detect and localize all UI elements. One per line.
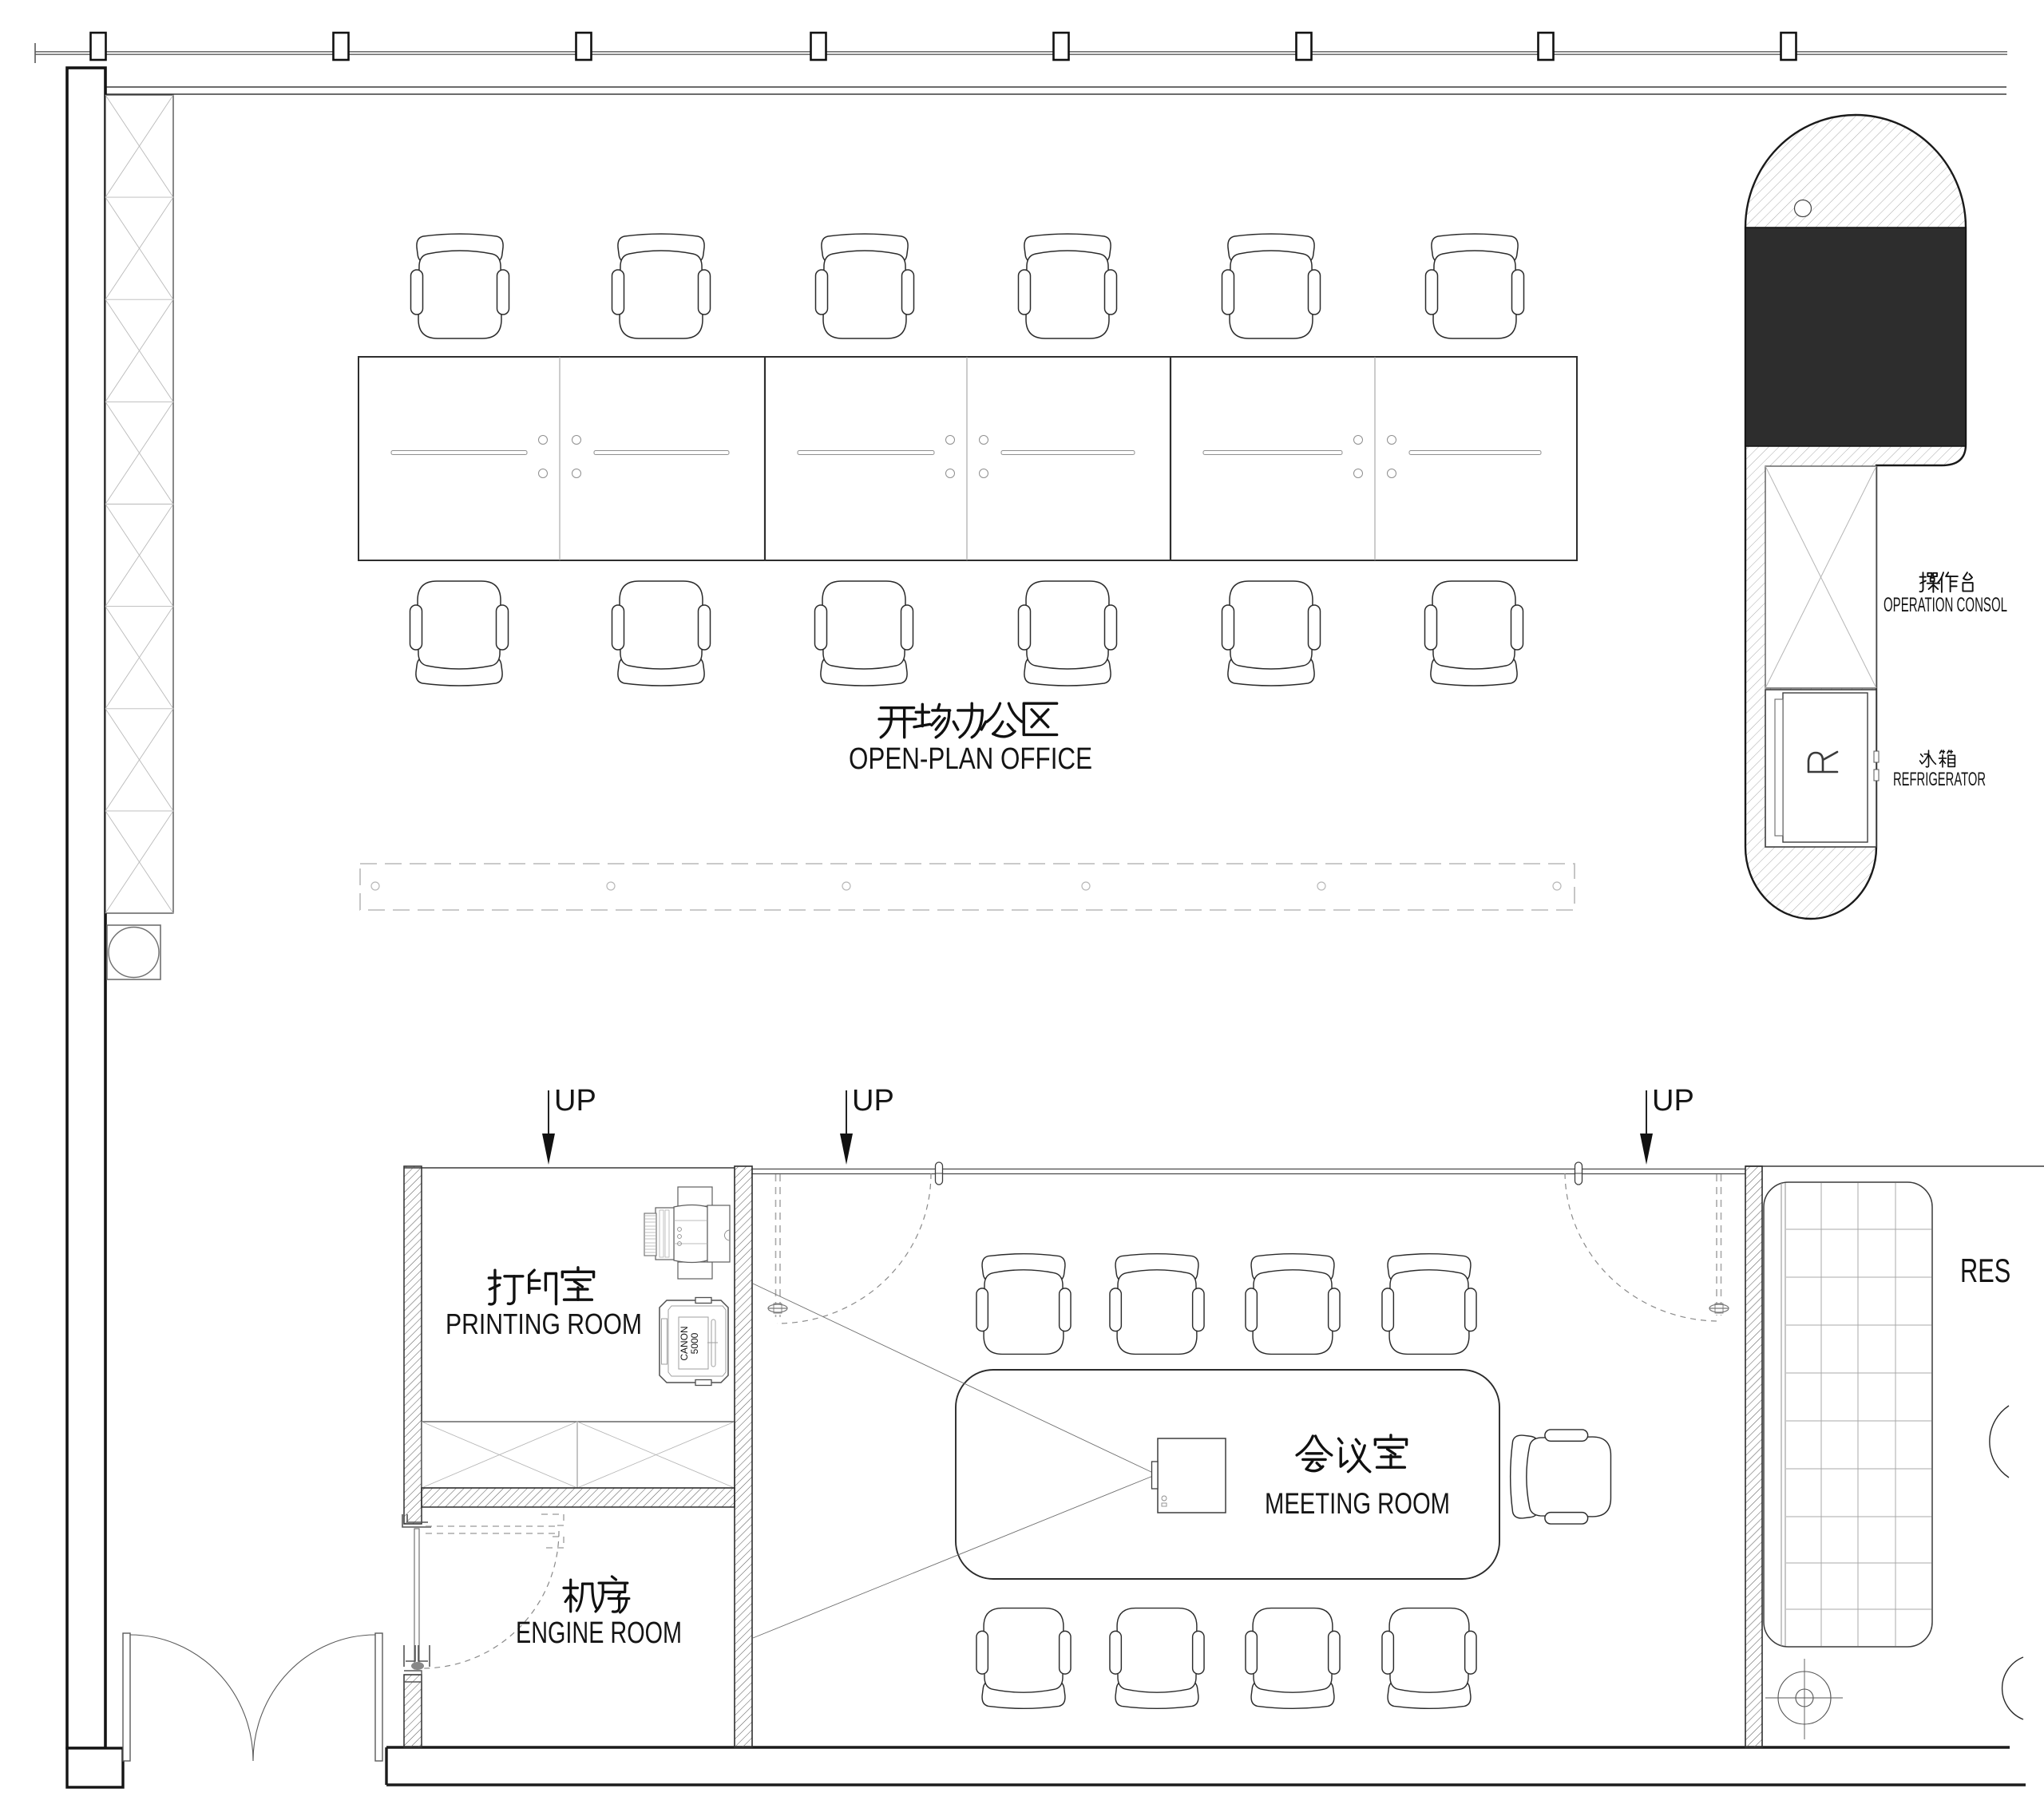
svg-text:REFRIGERATOR: REFRIGERATOR	[1893, 769, 1986, 790]
svg-text:UP: UP	[852, 1084, 894, 1118]
svg-text:ENGINE ROOM: ENGINE ROOM	[516, 1616, 682, 1650]
svg-text:CANON: CANON	[679, 1326, 690, 1360]
svg-text:5000: 5000	[689, 1332, 700, 1354]
svg-text:UP: UP	[554, 1084, 596, 1118]
svg-text:PRINTING ROOM: PRINTING ROOM	[446, 1308, 642, 1340]
svg-text:OPERATION CONSOL: OPERATION CONSOL	[1884, 594, 2007, 616]
svg-text:MEETING ROOM: MEETING ROOM	[1265, 1487, 1450, 1520]
svg-text:OPEN-PLAN OFFICE: OPEN-PLAN OFFICE	[849, 742, 1092, 776]
svg-text:UP: UP	[1652, 1084, 1694, 1118]
